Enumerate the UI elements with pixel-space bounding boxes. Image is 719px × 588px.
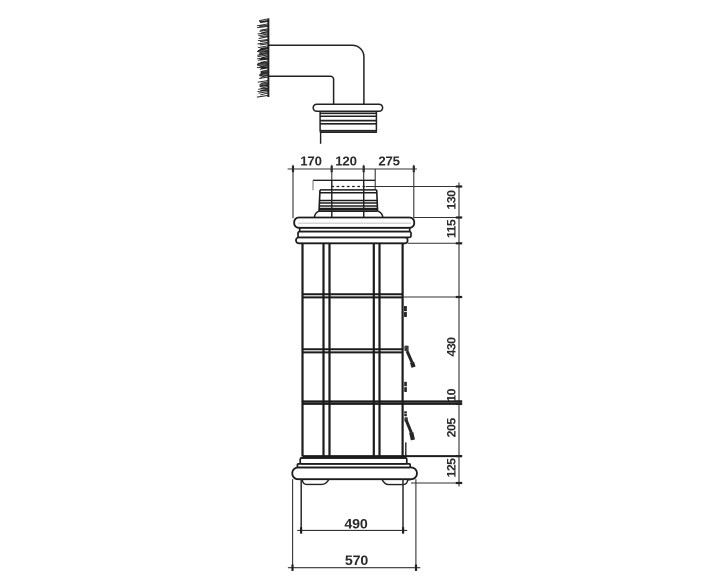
svg-text:490: 490 [344, 516, 367, 532]
svg-text:430: 430 [444, 337, 458, 357]
svg-text:275: 275 [378, 153, 399, 168]
svg-text:170: 170 [300, 153, 321, 168]
svg-text:120: 120 [335, 153, 356, 168]
svg-text:10: 10 [444, 388, 458, 401]
svg-text:570: 570 [345, 553, 368, 569]
svg-text:130: 130 [444, 190, 458, 210]
svg-text:125: 125 [444, 458, 458, 478]
svg-text:205: 205 [444, 418, 458, 438]
svg-text:115: 115 [444, 219, 458, 238]
